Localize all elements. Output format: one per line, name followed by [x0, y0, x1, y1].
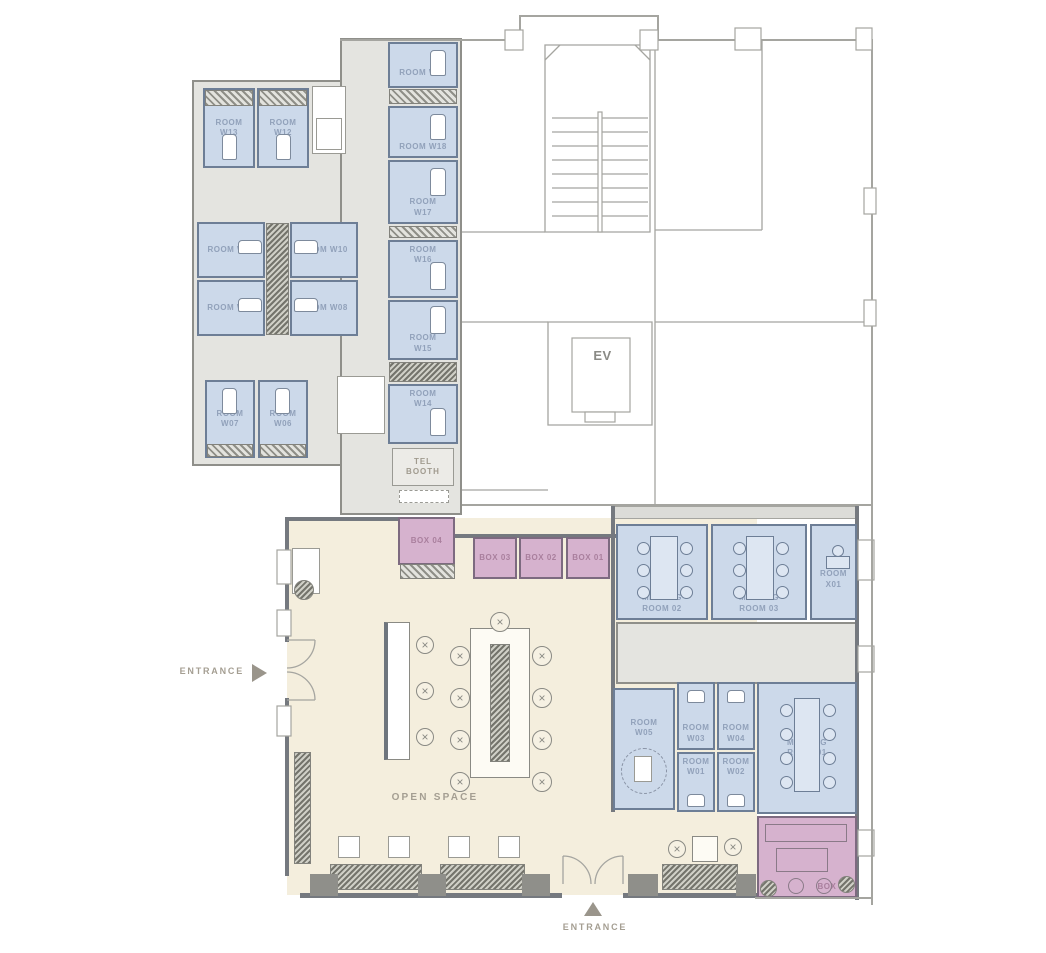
- elevator-label: EV: [560, 348, 645, 363]
- entrance-bottom-arrow-icon: [584, 902, 602, 916]
- entrance-bottom-label: ENTRANCE: [540, 922, 650, 932]
- building-outline: [0, 0, 1046, 953]
- entrance-left-arrow-icon: [252, 664, 267, 682]
- floor-plan: ROOM W13 ROOM W12 ROOM W11 ROOM W10 ROOM…: [0, 0, 1046, 953]
- entrance-left-label: ENTRANCE: [152, 666, 244, 676]
- open-space-label: OPEN SPACE: [365, 792, 505, 803]
